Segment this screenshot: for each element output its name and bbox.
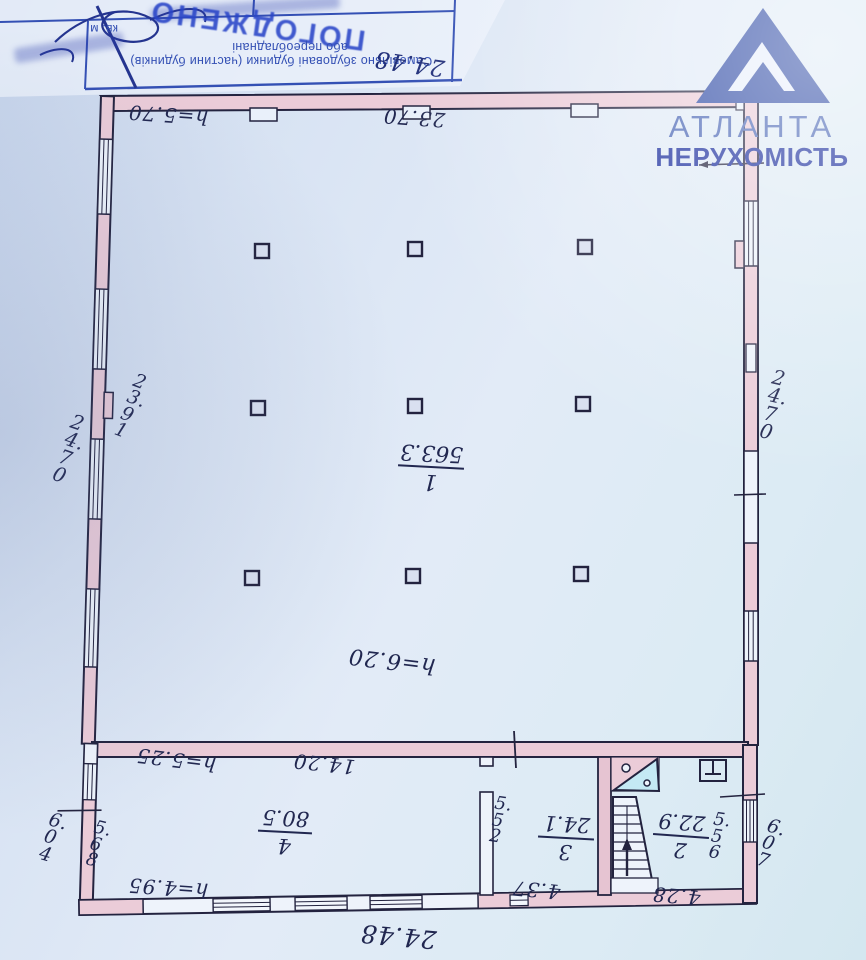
room-number: 2 [673, 838, 688, 863]
room-number: 1 [423, 469, 438, 495]
column-markers [245, 240, 592, 585]
room-number: 3 [558, 840, 573, 865]
atlanta-triangle-icon [638, 6, 866, 106]
dimension-label-room3-width: 4.37 [511, 876, 561, 904]
form-text-line2: або переобладнані [232, 40, 348, 54]
room-label-1: 1 563.3 [397, 438, 466, 495]
room-number: 4 [277, 834, 292, 859]
watermark-logo: АТЛАНТА НЕРУХОМІСТЬ [638, 6, 866, 173]
form-unit-label: кв. м [90, 22, 118, 36]
room-label-3: 3 24.1 [537, 811, 596, 866]
room-label-2: 2 22.9 [651, 808, 710, 864]
dimension-label-top-inner: 23.70 [382, 104, 446, 132]
window-icon [83, 764, 97, 800]
partition-room3-stair [598, 757, 611, 895]
brand-name: АТЛАНТА [638, 111, 866, 142]
brand-subtitle: НЕРУХОМІСТЬ [638, 142, 866, 173]
room-area: 563.3 [400, 438, 464, 466]
room-area: 22.9 [658, 808, 706, 835]
scanned-floor-plan-photo: ПОГОДЖЕНО Самовільно збудовані будинки (… [0, 0, 866, 960]
dimension-tick [734, 494, 766, 495]
room-area: 24.1 [543, 811, 591, 837]
dimension-label-room2-width: 4.28 [651, 882, 701, 910]
shaft-symbol [700, 760, 726, 781]
room-area: 80.5 [262, 805, 310, 831]
right-wall [699, 91, 766, 745]
stairs-symbol [611, 757, 659, 893]
pilaster [103, 392, 113, 418]
dimension-tick [514, 731, 516, 768]
pilaster [735, 241, 744, 268]
room-label-4: 4 80.5 [257, 805, 314, 860]
left-wall [82, 96, 122, 744]
